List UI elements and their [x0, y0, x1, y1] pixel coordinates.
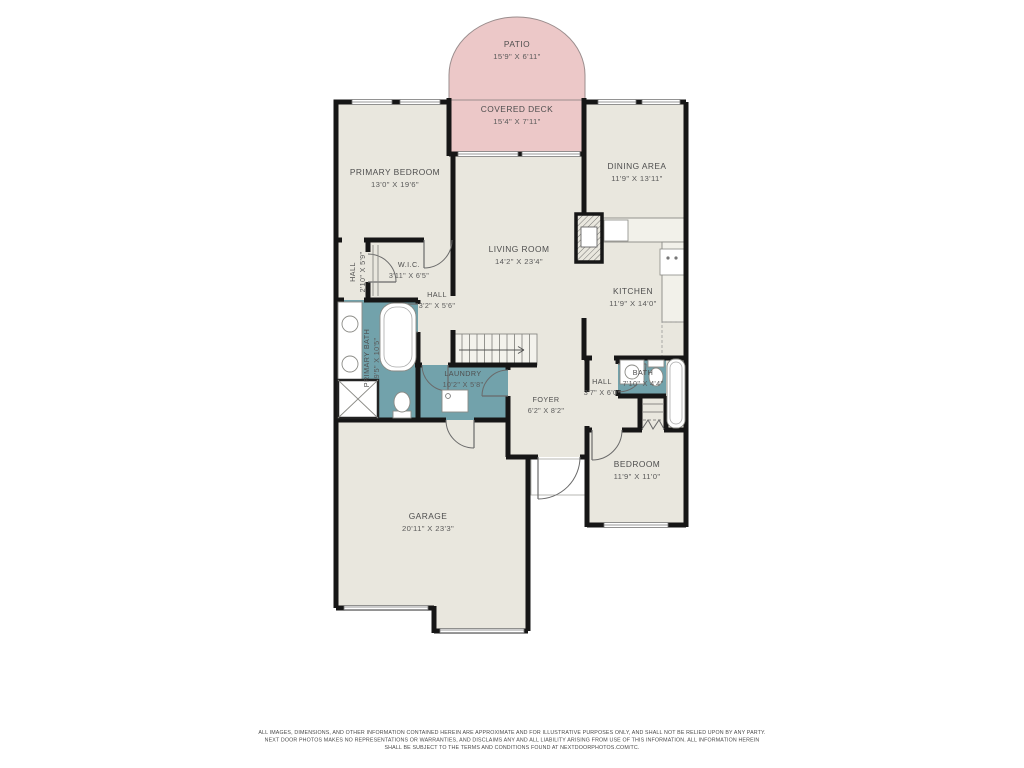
room-label: HALL — [348, 262, 357, 282]
room-label: GARAGE — [409, 511, 448, 521]
disclaimer-line: NEXT DOOR PHOTOS MAKES NO REPRESENTATION… — [265, 738, 760, 744]
room-label: HALL — [427, 290, 447, 299]
refrigerator-icon — [604, 220, 628, 241]
window — [598, 100, 636, 105]
outdoor-areas — [449, 17, 585, 154]
room-label: LIVING ROOM — [489, 244, 550, 254]
window — [400, 100, 440, 105]
disclaimer: ALL IMAGES, DIMENSIONS, AND OTHER INFORM… — [258, 730, 765, 751]
bathtub-icon — [380, 303, 416, 371]
kitchen-sink-icon — [660, 249, 684, 275]
vanity-counter — [338, 302, 362, 392]
sink-icon — [342, 316, 358, 332]
sliding-door — [458, 152, 518, 157]
room-dims: 15'4" X 7'11" — [493, 117, 540, 126]
toilet-icon — [393, 392, 411, 418]
disclaimer-line: SHALL BE SUBJECT TO THE TERMS AND CONDIT… — [385, 745, 640, 751]
room-label: COVERED DECK — [481, 104, 553, 114]
window — [352, 100, 392, 105]
stairs — [455, 334, 537, 365]
shower-icon — [338, 380, 378, 418]
room-dims: 2'10" X 5'9" — [358, 251, 367, 292]
floor-plan-canvas: PATIO 15'9" X 6'11" COVERED DECK 15'4" X… — [0, 0, 1024, 768]
room-dims: 10'2" X 5'8" — [443, 380, 484, 389]
room-label: DINING AREA — [608, 161, 667, 171]
window — [642, 100, 680, 105]
fireplace-icon — [576, 214, 602, 262]
room-label: LAUNDRY — [444, 369, 481, 378]
room-dims: 3'2" X 5'6" — [419, 301, 456, 310]
room-dims: 3'11" X 6'5" — [389, 271, 429, 280]
sliding-door — [522, 152, 580, 157]
room-label: BATH — [633, 368, 653, 377]
room-label: BEDROOM — [614, 459, 660, 469]
room-dims: 9'5" X 10'5" — [372, 337, 381, 378]
window — [604, 523, 668, 528]
room-dims: 11'9" X 13'11" — [611, 174, 662, 183]
washer-icon — [442, 390, 468, 412]
room-label: W.I.C. — [398, 260, 420, 269]
front-stoop — [531, 459, 585, 495]
room-label: FOYER — [532, 395, 559, 404]
room-dims: 11'9" X 14'0" — [609, 299, 656, 308]
bathtub-icon — [667, 359, 685, 428]
room-label: PRIMARY BATH — [362, 329, 371, 388]
room-dims: 20'11" X 23'3" — [402, 524, 454, 533]
garage-door — [440, 629, 524, 634]
room-label: HALL — [592, 377, 612, 386]
room-dims: 7'10" X 4'4" — [623, 379, 664, 388]
room-dims: 15'9" X 6'11" — [493, 52, 540, 61]
garage-door — [344, 606, 428, 611]
room-dims: 11'9" X 11'0" — [614, 472, 661, 481]
floor-plan-page: PATIO 15'9" X 6'11" COVERED DECK 15'4" X… — [0, 0, 1024, 768]
room-dims: 13'0" X 19'6" — [371, 180, 419, 189]
sink-icon — [342, 356, 358, 372]
room-label: KITCHEN — [613, 286, 653, 296]
room-dims: 14'2" X 23'4" — [495, 257, 543, 266]
room-dims: 6'2" X 8'2" — [528, 406, 565, 415]
room-label: PATIO — [504, 39, 530, 49]
room-label: PRIMARY BEDROOM — [350, 167, 440, 177]
disclaimer-line: ALL IMAGES, DIMENSIONS, AND OTHER INFORM… — [258, 730, 765, 736]
room-dims: 3'7" X 6'0" — [584, 388, 621, 397]
